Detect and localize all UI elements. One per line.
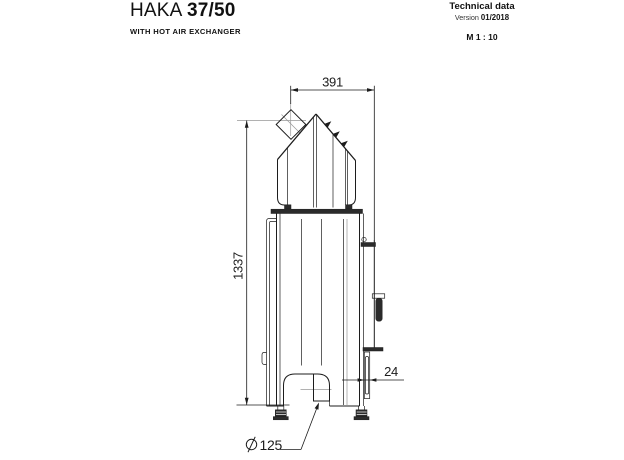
right-foot <box>354 406 369 420</box>
door <box>361 237 385 398</box>
technical-drawing-page: HAKA 37/50 WITH HOT AIR EXCHANGER Techni… <box>0 0 624 460</box>
door-top-bracket <box>361 243 376 247</box>
dim-1337-text: 1337 <box>231 252 246 280</box>
centerlines <box>237 103 332 390</box>
diameter-symbol <box>246 437 256 452</box>
left-foot <box>273 406 288 420</box>
dim-391-text: 391 <box>322 75 343 90</box>
feet <box>273 406 369 420</box>
door-top-pivot <box>362 237 366 241</box>
dimension-1337: 1337 <box>231 121 290 406</box>
side-panel-clip <box>262 353 267 365</box>
hood <box>278 114 356 209</box>
air-intake-arch <box>284 374 330 406</box>
hood-seam-marks <box>324 121 347 147</box>
body <box>262 214 364 407</box>
door-lower-bracket <box>363 348 383 352</box>
dimension-391: 391 <box>291 75 375 241</box>
top-plate <box>271 209 363 213</box>
dim-24-text: 24 <box>384 364 398 379</box>
dimension-24: 24 <box>342 364 404 382</box>
stove-side-elevation: 391 1337 24 125 <box>0 0 624 460</box>
door-lower-panel <box>364 352 369 399</box>
dim-125-text: 125 <box>260 437 283 453</box>
